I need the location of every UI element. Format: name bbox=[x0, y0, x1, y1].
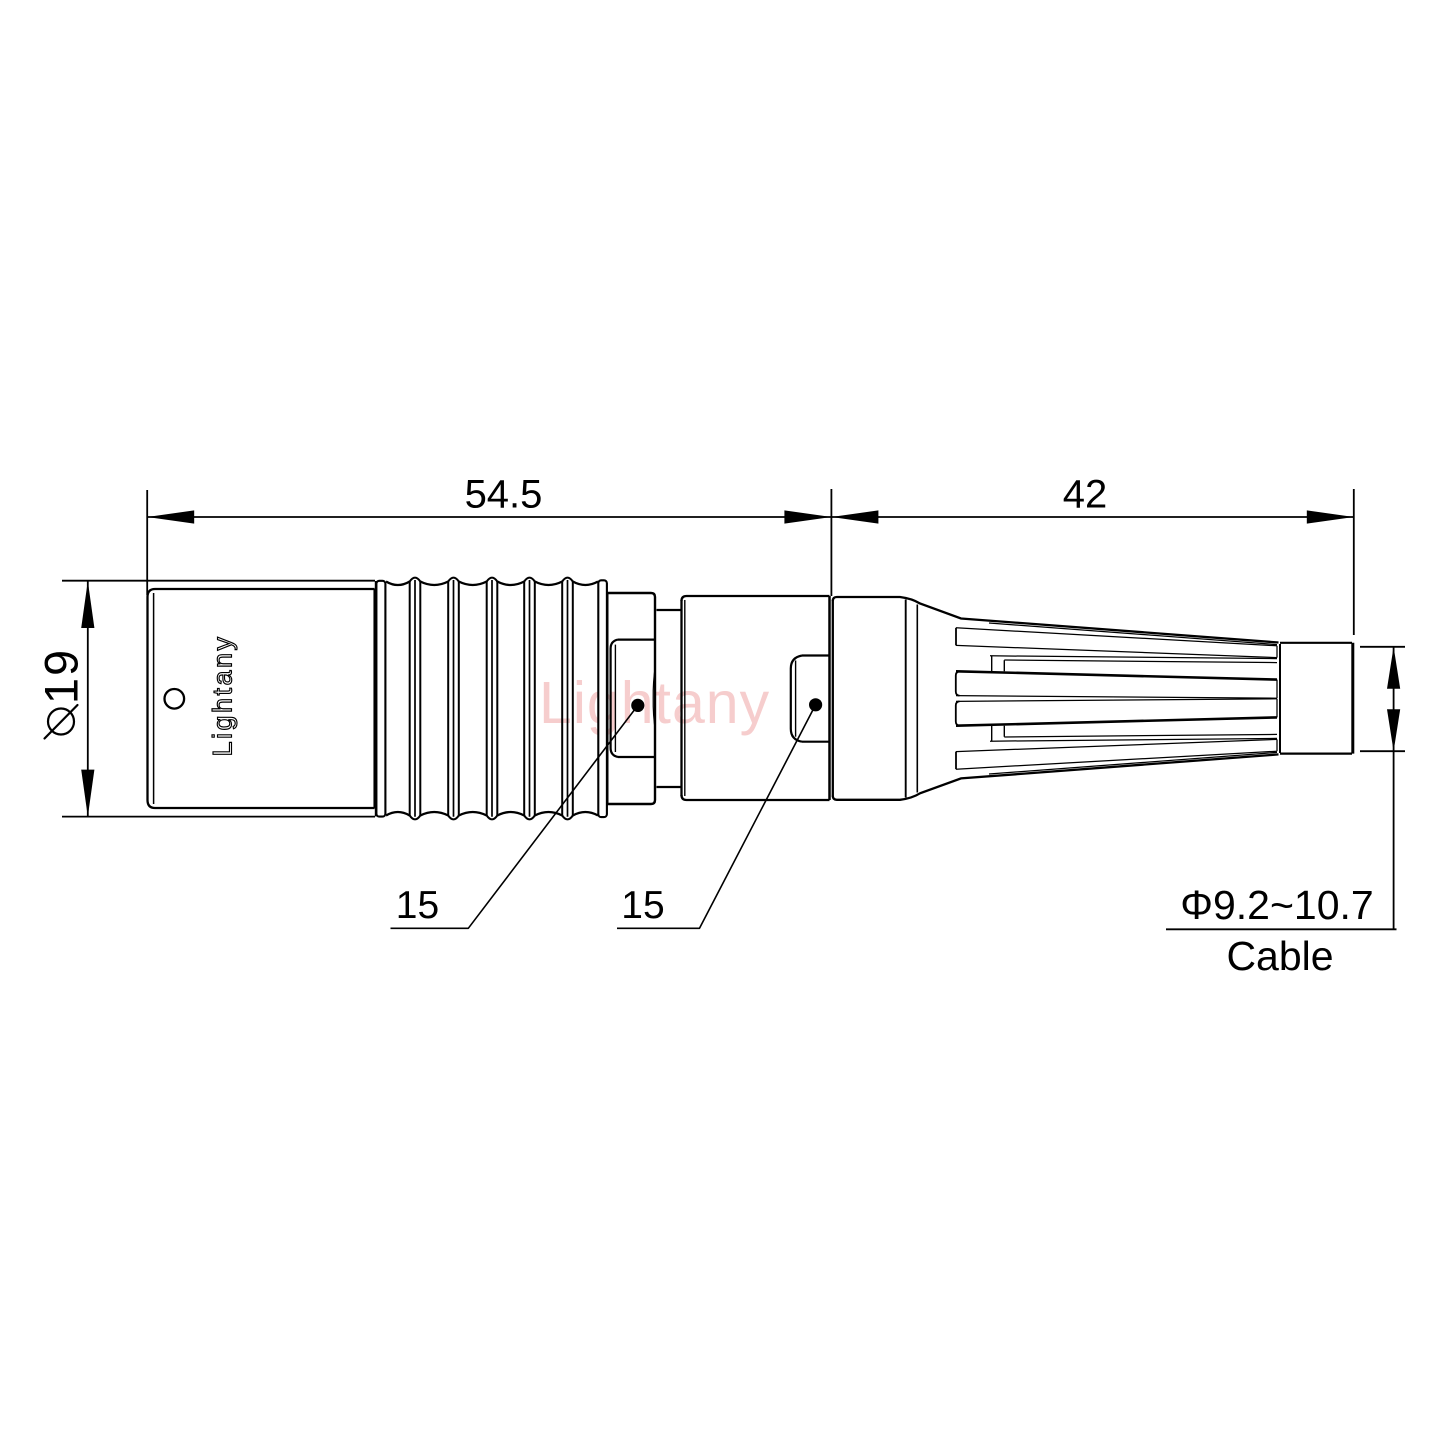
svg-text:15: 15 bbox=[621, 884, 664, 927]
svg-text:Φ9.2~10.7: Φ9.2~10.7 bbox=[1180, 882, 1373, 928]
svg-text:Cable: Cable bbox=[1226, 933, 1333, 979]
svg-text:Lightany: Lightany bbox=[208, 634, 238, 756]
svg-text:54.5: 54.5 bbox=[465, 473, 543, 517]
svg-text:19: 19 bbox=[35, 648, 88, 704]
svg-text:15: 15 bbox=[396, 884, 439, 927]
svg-text:42: 42 bbox=[1063, 473, 1108, 517]
